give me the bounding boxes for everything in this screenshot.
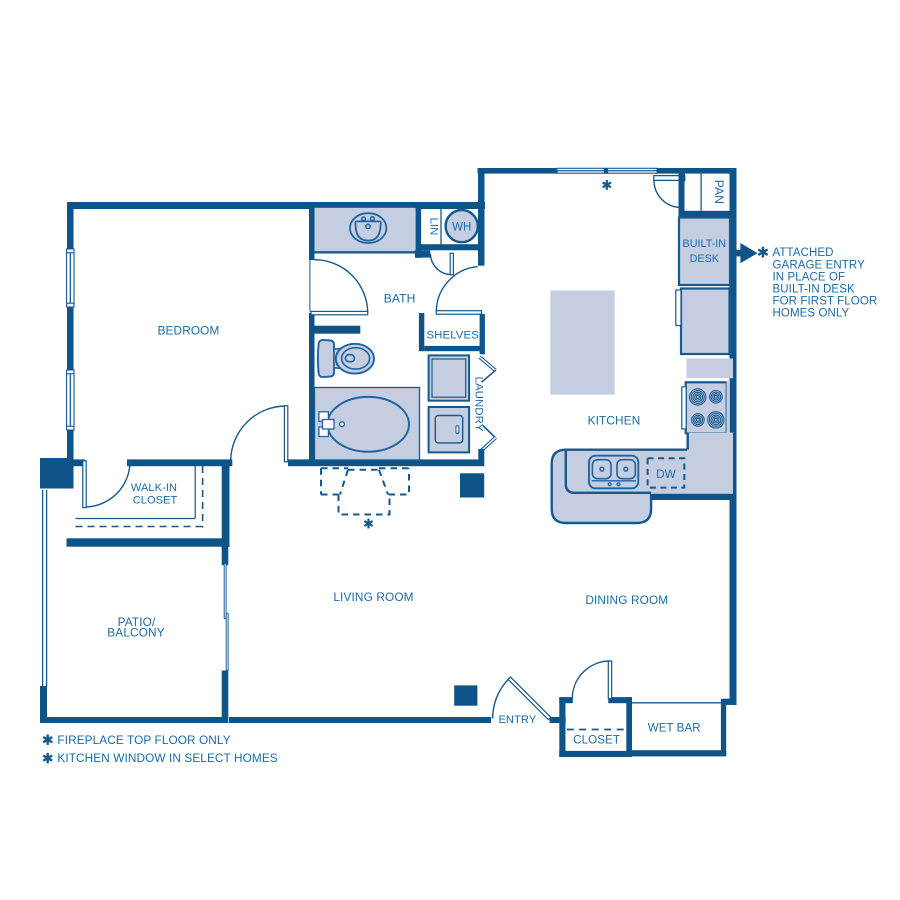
svg-text:PAN: PAN [712,180,726,204]
svg-text:CLOSET: CLOSET [133,494,178,506]
svg-text:GARAGE ENTRY: GARAGE ENTRY [773,259,866,271]
svg-text:ENTRY: ENTRY [498,714,536,726]
svg-text:BATH: BATH [384,292,416,306]
svg-text:BEDROOM: BEDROOM [157,323,219,337]
svg-text:LAUNDRY: LAUNDRY [473,377,485,432]
svg-text:BALCONY: BALCONY [107,626,164,640]
svg-text:WALK-IN: WALK-IN [131,482,177,494]
svg-text:WET BAR: WET BAR [648,722,701,734]
svg-text:BUILT-IN: BUILT-IN [683,238,727,250]
svg-text:HOMES ONLY: HOMES ONLY [773,308,850,320]
svg-text:KITCHEN: KITCHEN [588,414,641,428]
svg-text:LIN: LIN [428,217,440,235]
svg-text:DESK: DESK [690,253,720,265]
svg-text:KITCHEN WINDOW IN SELECT HOMES: KITCHEN WINDOW IN SELECT HOMES [57,751,277,765]
svg-text:DINING ROOM: DINING ROOM [585,593,668,607]
svg-text:BUILT-IN DESK: BUILT-IN DESK [773,284,855,296]
svg-text:LIVING ROOM: LIVING ROOM [333,590,413,604]
svg-text:WH: WH [452,221,471,233]
svg-text:FIREPLACE TOP FLOOR ONLY: FIREPLACE TOP FLOOR ONLY [57,733,230,747]
svg-text:SHELVES: SHELVES [426,330,479,342]
svg-text:ATTACHED: ATTACHED [773,247,834,259]
svg-text:DW: DW [656,467,677,481]
svg-text:CLOSET: CLOSET [573,733,620,746]
svg-text:FOR FIRST FLOOR: FOR FIRST FLOOR [773,296,878,308]
svg-text:IN PLACE OF: IN PLACE OF [773,271,846,283]
